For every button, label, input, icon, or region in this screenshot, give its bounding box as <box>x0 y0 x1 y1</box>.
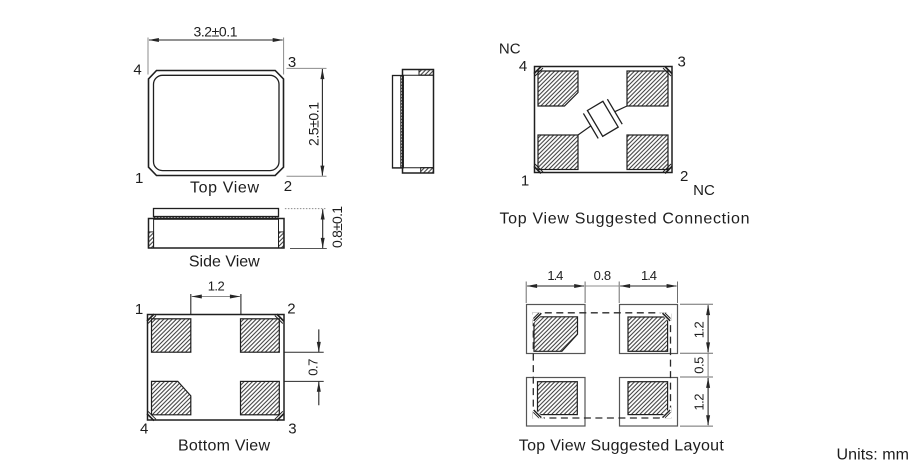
svg-text:Top View Suggested Layout: Top View Suggested Layout <box>519 437 725 454</box>
svg-text:2: 2 <box>680 168 688 185</box>
svg-text:0.8±0.1: 0.8±0.1 <box>329 206 345 248</box>
svg-text:Side View: Side View <box>189 254 260 271</box>
svg-text:2.5±0.1: 2.5±0.1 <box>306 102 322 146</box>
svg-text:4: 4 <box>133 61 141 78</box>
svg-text:3: 3 <box>288 54 296 71</box>
svg-text:4: 4 <box>140 420 148 437</box>
svg-text:2: 2 <box>284 178 292 195</box>
svg-text:3: 3 <box>288 420 296 437</box>
svg-text:0.7: 0.7 <box>305 359 320 376</box>
svg-text:0.8: 0.8 <box>594 268 612 283</box>
svg-text:1.2: 1.2 <box>692 321 707 338</box>
svg-text:1: 1 <box>521 172 529 189</box>
svg-text:4: 4 <box>519 58 527 75</box>
svg-text:Bottom View: Bottom View <box>178 437 270 454</box>
svg-text:1: 1 <box>135 170 143 187</box>
svg-text:Top View: Top View <box>190 179 259 196</box>
svg-text:Top View Suggested Connection: Top View Suggested Connection <box>500 210 750 227</box>
svg-text:1.2: 1.2 <box>692 394 707 411</box>
svg-text:3: 3 <box>678 54 686 71</box>
svg-text:2: 2 <box>287 301 295 318</box>
svg-text:3.2±0.1: 3.2±0.1 <box>194 24 238 40</box>
svg-text:1.2: 1.2 <box>208 279 225 294</box>
svg-text:NC: NC <box>693 182 715 199</box>
svg-text:0.5: 0.5 <box>692 357 707 374</box>
svg-text:NC: NC <box>499 41 521 58</box>
svg-text:Units: mm: Units: mm <box>837 447 910 464</box>
svg-text:1: 1 <box>135 301 143 318</box>
svg-text:1.4: 1.4 <box>547 268 563 283</box>
svg-text:1.4: 1.4 <box>641 268 657 283</box>
